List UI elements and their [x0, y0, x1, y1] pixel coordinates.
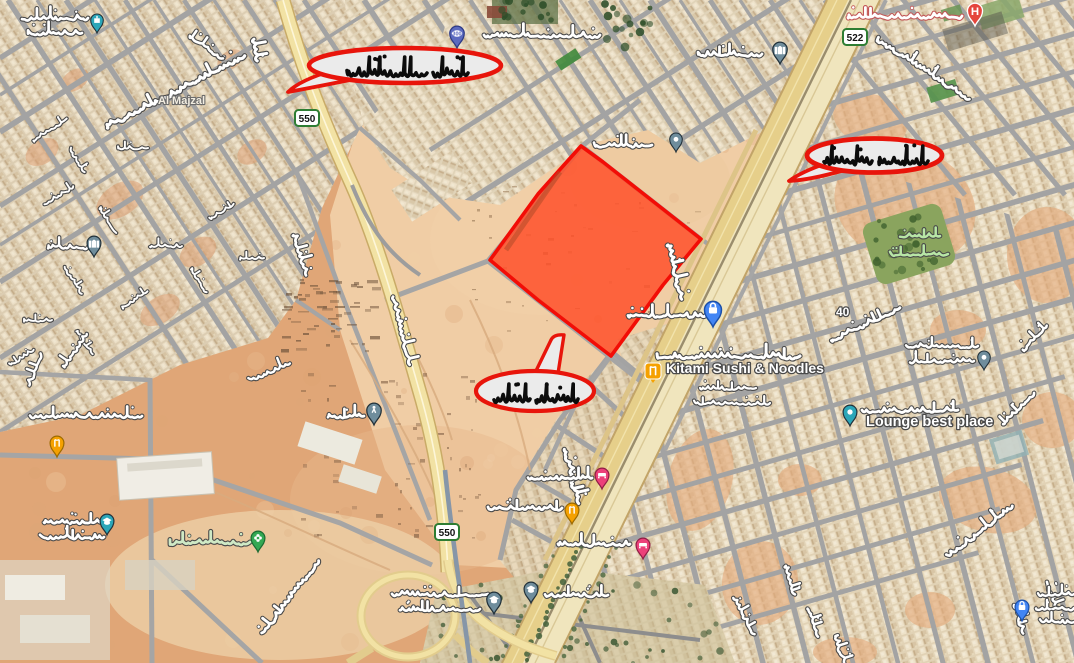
svg-text:550: 550 — [439, 528, 456, 539]
svg-text:300: 300 — [452, 32, 461, 38]
svg-text:Kitami Sushi & Noodles: Kitami Sushi & Noodles — [666, 360, 824, 376]
svg-text:550: 550 — [299, 114, 316, 125]
svg-text:Al Majzal: Al Majzal — [158, 95, 205, 107]
svg-text:H: H — [971, 6, 979, 18]
svg-text:40: 40 — [836, 305, 850, 319]
svg-text:Lounge best place: Lounge best place — [866, 414, 993, 430]
svg-text:522: 522 — [847, 33, 864, 44]
